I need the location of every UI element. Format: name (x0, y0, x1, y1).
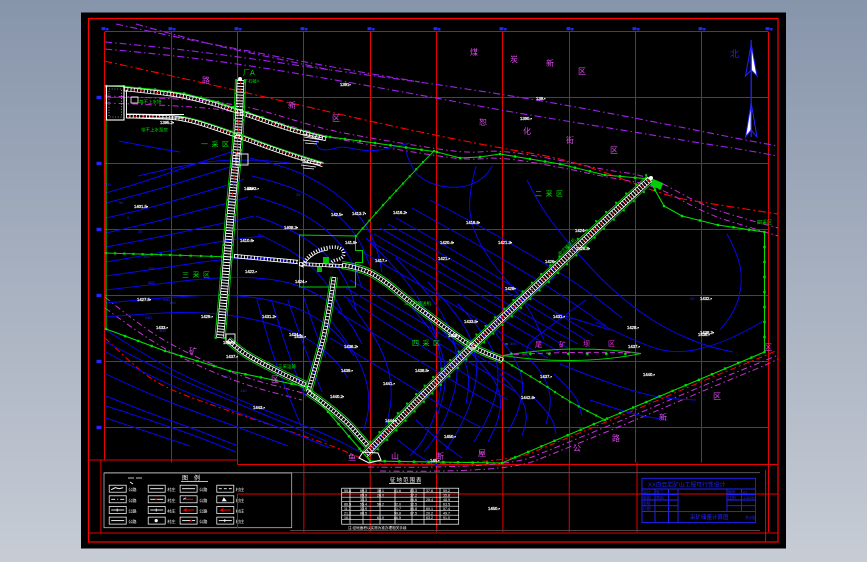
svg-text:矿石破A: 矿石破A (244, 78, 260, 85)
svg-text:1421.▪: 1421.▪ (438, 256, 450, 261)
svg-text:1421.3▪: 1421.3▪ (498, 240, 513, 245)
svg-text:路: 路 (202, 75, 210, 85)
svg-text:37.2: 37.2 (410, 494, 417, 498)
svg-text:村庄: 村庄 (167, 508, 175, 515)
svg-text:1432.▪: 1432.▪ (700, 296, 712, 301)
svg-text:1437.▪: 1437.▪ (540, 374, 552, 379)
svg-text:街: 街 (566, 135, 574, 145)
svg-text:公路: 公路 (199, 497, 208, 504)
svg-text:130: 130 (223, 374, 230, 379)
svg-text:新: 新 (659, 412, 667, 422)
svg-text:1408.3▪: 1408.3▪ (284, 225, 299, 230)
svg-text:61.0: 61.0 (377, 516, 384, 520)
svg-text:69.3: 69.3 (360, 489, 367, 493)
svg-text:49.7: 49.7 (443, 512, 450, 516)
svg-text:1450.▪: 1450.▪ (488, 506, 500, 511)
svg-text:屋: 屋 (478, 449, 486, 458)
svg-text:300: 300 (510, 341, 517, 346)
svg-text:59.2: 59.2 (443, 489, 450, 493)
svg-text:1417.▪: 1417.▪ (375, 258, 387, 263)
svg-text:35.8: 35.8 (443, 494, 450, 498)
svg-text:新: 新 (546, 58, 554, 68)
svg-text:69.1: 69.1 (426, 507, 433, 511)
svg-text:尾: 尾 (535, 341, 542, 349)
svg-text:1439.▪: 1439.▪ (341, 368, 353, 373)
svg-text:1424▪: 1424▪ (575, 228, 586, 233)
svg-text:炭: 炭 (510, 55, 518, 64)
svg-text:41.6: 41.6 (394, 489, 401, 493)
svg-text:恕: 恕 (479, 117, 487, 127)
svg-text:1438.5▪: 1438.5▪ (415, 368, 430, 373)
svg-text:区: 区 (332, 114, 340, 123)
svg-text:比例: 比例 (728, 495, 736, 500)
svg-text:50: 50 (119, 200, 124, 205)
svg-text:图号: 图号 (728, 490, 736, 495)
svg-text:1436.2▪: 1436.2▪ (344, 344, 359, 349)
svg-text:路: 路 (612, 433, 620, 443)
svg-text:煤: 煤 (470, 47, 478, 57)
svg-text:公路: 公路 (128, 497, 137, 504)
svg-text:1450.▪: 1450.▪ (444, 434, 456, 439)
svg-text:12.5: 12.5 (410, 503, 417, 507)
svg-text:新: 新 (288, 100, 296, 110)
svg-text:1413.7▪: 1413.7▪ (352, 211, 367, 216)
svg-text:350: 350 (143, 254, 150, 259)
svg-text:86.5: 86.5 (344, 503, 351, 507)
svg-text:化: 化 (523, 126, 531, 136)
svg-text:日期: 日期 (643, 506, 651, 511)
svg-text:区: 区 (271, 375, 279, 384)
svg-text:村庄: 村庄 (236, 486, 244, 493)
svg-text:1427.5▪: 1427.5▪ (137, 297, 152, 302)
svg-text:1430.▪: 1430.▪ (448, 333, 460, 338)
svg-text:01: 01 (743, 491, 747, 495)
svg-text:1443.▪: 1443.▪ (253, 405, 265, 410)
svg-text:89.9: 89.9 (360, 494, 367, 498)
svg-text:63.5: 63.5 (443, 503, 450, 507)
svg-text:33.3: 33.3 (360, 498, 367, 502)
svg-text:注:征地面积以实测为准办理相关手续: 注:征地面积以实测为准办理相关手续 (348, 525, 407, 530)
svg-text:1434.▪: 1434.▪ (289, 332, 301, 337)
svg-text:制图: 制图 (643, 495, 651, 500)
svg-text:1401.5▪: 1401.5▪ (134, 204, 149, 209)
svg-text:1431.2▪: 1431.2▪ (262, 314, 277, 319)
svg-text:140: 140 (169, 300, 176, 305)
svg-text:三采区输送机: 三采区输送机 (404, 300, 431, 307)
svg-text:35: 35 (296, 192, 301, 197)
svg-text:1416.2▪: 1416.2▪ (393, 210, 408, 215)
svg-text:公路: 公路 (128, 486, 137, 493)
svg-text:143.6▪: 143.6▪ (223, 340, 235, 345)
svg-text:矿: 矿 (189, 346, 197, 356)
svg-text:区: 区 (578, 67, 586, 76)
svg-text:审核: 审核 (643, 501, 651, 506)
svg-text:41.7: 41.7 (394, 507, 401, 511)
svg-text:99.8: 99.8 (394, 512, 401, 516)
svg-text:142.5▪: 142.5▪ (331, 212, 343, 217)
svg-text:88.5: 88.5 (360, 512, 367, 516)
svg-text:1:2000: 1:2000 (743, 496, 755, 500)
svg-text:56.6: 56.6 (410, 498, 417, 502)
svg-text:设计: 设计 (643, 490, 651, 495)
svg-text:1440.2▪: 1440.2▪ (330, 394, 345, 399)
svg-text:16.1: 16.1 (344, 516, 351, 520)
svg-text:360: 360 (148, 280, 155, 285)
svg-text:区: 区 (713, 392, 721, 401)
svg-text:公: 公 (573, 444, 581, 453)
svg-text:1426.8▪: 1426.8▪ (576, 246, 591, 251)
svg-text:三采区: 三采区 (182, 270, 214, 279)
svg-text:1391▪: 1391▪ (340, 82, 351, 87)
svg-text:村庄: 村庄 (167, 497, 175, 504)
svg-text:140.▪: 140.▪ (244, 186, 254, 191)
svg-text:1426▪: 1426▪ (545, 259, 556, 264)
svg-text:1440.▪: 1440.▪ (643, 372, 655, 377)
svg-text:山: 山 (391, 451, 399, 461)
svg-text:1444.▪: 1444.▪ (385, 418, 397, 423)
svg-text:区: 区 (610, 146, 618, 155)
svg-text:30.1: 30.1 (377, 489, 384, 493)
svg-text:1390.▪: 1390.▪ (520, 116, 532, 121)
svg-text:20.2: 20.2 (426, 512, 433, 516)
svg-text:28.4: 28.4 (426, 498, 433, 502)
svg-text:20: 20 (690, 296, 695, 301)
svg-text:1420.4▪: 1420.4▪ (440, 240, 455, 245)
svg-text:图例: 图例 (182, 474, 206, 482)
svg-text:村庄: 村庄 (167, 518, 175, 525)
svg-text:公路: 公路 (199, 508, 208, 515)
svg-text:1442.6▪: 1442.6▪ (521, 395, 536, 400)
svg-text:1428▪: 1428▪ (505, 286, 516, 291)
svg-text:97.5: 97.5 (410, 512, 417, 516)
svg-text:55.8: 55.8 (410, 507, 417, 511)
svg-text:1418.6▪: 1418.6▪ (466, 220, 481, 225)
svg-text:村庄: 村庄 (167, 486, 175, 493)
svg-text:83.3: 83.3 (410, 489, 417, 493)
svg-text:55.4: 55.4 (360, 503, 367, 507)
svg-text:公路: 公路 (128, 508, 137, 515)
svg-text:1437.▪: 1437.▪ (628, 344, 640, 349)
svg-text:20: 20 (138, 229, 143, 234)
svg-text:55.8: 55.8 (344, 489, 351, 493)
svg-text:750: 750 (148, 266, 155, 271)
svg-text:四采区: 四采区 (757, 219, 772, 226)
svg-text:50.2: 50.2 (377, 503, 384, 507)
svg-text:86.5: 86.5 (394, 516, 401, 520)
svg-text:1438.2▪: 1438.2▪ (700, 330, 715, 335)
svg-text:1441.▪: 1441.▪ (383, 381, 395, 386)
svg-text:240: 240 (145, 315, 152, 320)
svg-text:21.3: 21.3 (344, 512, 351, 516)
svg-text:三采运输: 三采运输 (278, 363, 296, 370)
svg-text:公路: 公路 (128, 518, 137, 525)
svg-text:1437.▪: 1437.▪ (226, 354, 238, 359)
svg-text:37.6: 37.6 (426, 489, 433, 493)
svg-text:11.7: 11.7 (344, 507, 351, 511)
svg-text:33.9: 33.9 (360, 507, 367, 511)
svg-text:每不上水塔: 每不上水塔 (139, 99, 162, 106)
svg-text:1422.▪: 1422.▪ (245, 269, 257, 274)
svg-text:矿: 矿 (559, 340, 566, 349)
svg-text:征地范围表: 征地范围表 (390, 476, 423, 484)
svg-text:带不上水泵房: 带不上水泵房 (141, 127, 168, 134)
svg-text:1395.2▪: 1395.2▪ (160, 120, 175, 125)
svg-text:1429.▪: 1429.▪ (201, 314, 213, 319)
svg-text:一采区: 一采区 (201, 140, 233, 149)
svg-text:二采区: 二采区 (535, 189, 567, 198)
svg-text:32.0: 32.0 (394, 503, 401, 507)
svg-text:141.8▪: 141.8▪ (345, 240, 357, 245)
svg-text:区: 区 (764, 343, 772, 352)
svg-text:1433.5▪: 1433.5▪ (464, 319, 479, 324)
svg-text:1410.6▪: 1410.6▪ (240, 238, 255, 243)
svg-text:区: 区 (608, 340, 615, 348)
svg-text:鱼: 鱼 (348, 452, 356, 462)
svg-text:四采区: 四采区 (412, 339, 444, 348)
svg-text:300: 300 (159, 328, 166, 333)
svg-text:48.9: 48.9 (443, 498, 450, 502)
svg-text:采矿储量计算图: 采矿储量计算图 (690, 513, 729, 521)
svg-text:15: 15 (436, 296, 441, 301)
svg-text:公路: 公路 (199, 518, 208, 525)
svg-text:140: 140 (240, 388, 247, 393)
svg-text:1431.▪: 1431.▪ (553, 314, 565, 319)
svg-text:张三: 张三 (656, 490, 664, 495)
svg-text:26.0: 26.0 (377, 494, 384, 498)
svg-text:145.▪: 145.▪ (430, 458, 440, 463)
svg-text:李四: 李四 (656, 495, 664, 500)
svg-text:XX白云岩矿山工程可行性设计: XX白云岩矿山工程可行性设计 (648, 481, 725, 489)
svg-text:厂A: 厂A (243, 69, 255, 77)
svg-text:1428.▪: 1428.▪ (627, 325, 639, 330)
svg-text:公路: 公路 (199, 486, 208, 493)
svg-text:63.2: 63.2 (426, 516, 433, 520)
svg-text:1424.▪: 1424.▪ (295, 279, 307, 284)
svg-text:北: 北 (730, 49, 739, 59)
svg-text:57.4: 57.4 (443, 507, 450, 511)
svg-text:400: 400 (104, 182, 111, 187)
svg-text:139.▪: 139.▪ (536, 96, 546, 101)
svg-text:91.0: 91.0 (443, 516, 450, 520)
svg-text:共1张: 共1张 (745, 514, 755, 520)
svg-text:坝: 坝 (583, 339, 590, 348)
